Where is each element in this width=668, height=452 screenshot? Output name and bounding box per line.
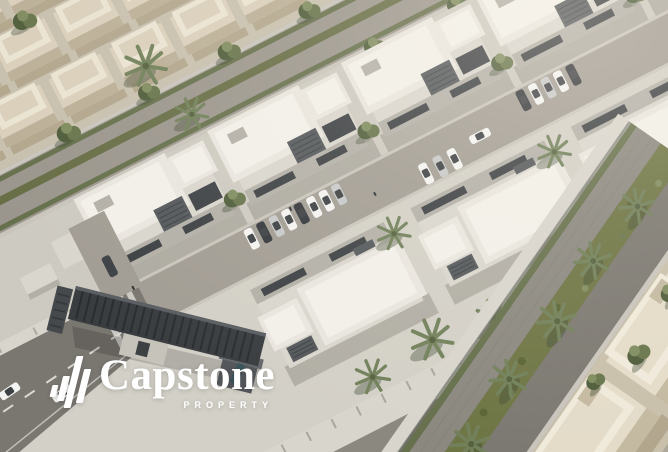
aerial-render: Capstone PROPERTY <box>0 0 668 452</box>
brand-subtitle: PROPERTY <box>184 400 274 410</box>
capstone-logo-icon <box>50 351 90 413</box>
brand-wordmark: Capstone <box>99 354 275 397</box>
logo-text: Capstone PROPERTY <box>99 354 275 410</box>
watermark-logo: Capstone PROPERTY <box>50 351 275 413</box>
